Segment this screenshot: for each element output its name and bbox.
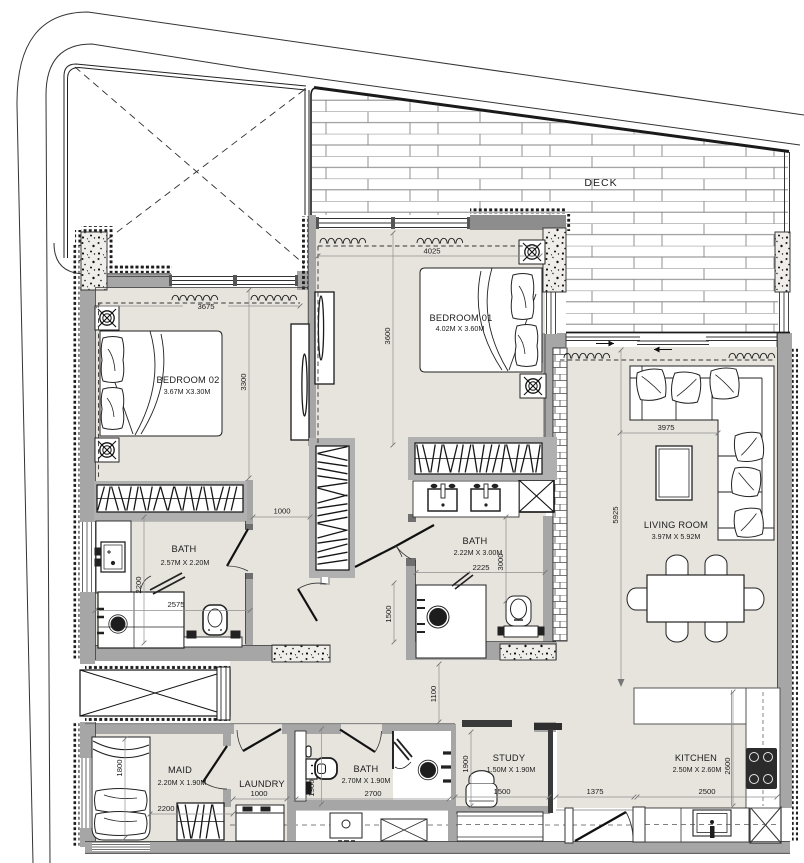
svg-text:3975: 3975 — [657, 423, 674, 432]
svg-text:2.22M X 3.00M: 2.22M X 3.00M — [454, 548, 503, 557]
svg-text:1100: 1100 — [429, 686, 438, 703]
svg-text:BATH: BATH — [172, 544, 197, 554]
svg-text:DECK: DECK — [584, 177, 617, 189]
svg-text:4025: 4025 — [423, 247, 440, 256]
svg-text:1900: 1900 — [461, 755, 470, 772]
svg-text:2200: 2200 — [134, 576, 143, 593]
svg-text:MAID: MAID — [168, 765, 192, 775]
svg-text:4.02M X 3.60M: 4.02M X 3.60M — [436, 324, 485, 333]
svg-text:1000: 1000 — [250, 789, 267, 798]
svg-text:2200: 2200 — [157, 804, 174, 813]
svg-text:2600: 2600 — [723, 757, 732, 774]
svg-text:5925: 5925 — [611, 506, 620, 523]
svg-text:1.50M X 1.90M: 1.50M X 1.90M — [487, 765, 536, 774]
svg-text:1900: 1900 — [307, 779, 316, 796]
svg-text:2.50M X 2.60M: 2.50M X 2.60M — [673, 765, 722, 774]
svg-text:1500: 1500 — [384, 605, 393, 622]
svg-text:2225: 2225 — [472, 563, 489, 572]
svg-text:LIVING ROOM: LIVING ROOM — [644, 520, 708, 530]
svg-text:STUDY: STUDY — [493, 753, 526, 763]
svg-text:1500: 1500 — [493, 787, 510, 796]
svg-text:2575: 2575 — [167, 600, 184, 609]
svg-text:3300: 3300 — [239, 373, 248, 390]
svg-text:2500: 2500 — [698, 787, 715, 796]
svg-text:3.97M X 5.92M: 3.97M X 5.92M — [652, 532, 701, 541]
svg-text:KITCHEN: KITCHEN — [675, 753, 717, 763]
svg-text:3600: 3600 — [383, 327, 392, 344]
svg-text:2.57M X 2.20M: 2.57M X 2.20M — [161, 558, 210, 567]
svg-text:3675: 3675 — [197, 302, 214, 311]
svg-text:BEDROOM 01: BEDROOM 01 — [430, 313, 493, 323]
svg-text:2.70M X 1.90M: 2.70M X 1.90M — [342, 776, 391, 785]
svg-text:1000: 1000 — [273, 507, 290, 516]
svg-text:BATH: BATH — [354, 764, 379, 774]
svg-text:1375: 1375 — [586, 787, 603, 796]
svg-text:1800: 1800 — [115, 759, 124, 776]
svg-text:BEDROOM 02: BEDROOM 02 — [157, 375, 220, 385]
svg-text:LAUNDRY: LAUNDRY — [239, 779, 285, 789]
svg-text:2.20M X 1.90M: 2.20M X 1.90M — [158, 778, 207, 787]
svg-text:2700: 2700 — [364, 789, 381, 798]
svg-text:BATH: BATH — [463, 536, 488, 546]
svg-text:3.67M X3.30M: 3.67M X3.30M — [164, 387, 211, 396]
